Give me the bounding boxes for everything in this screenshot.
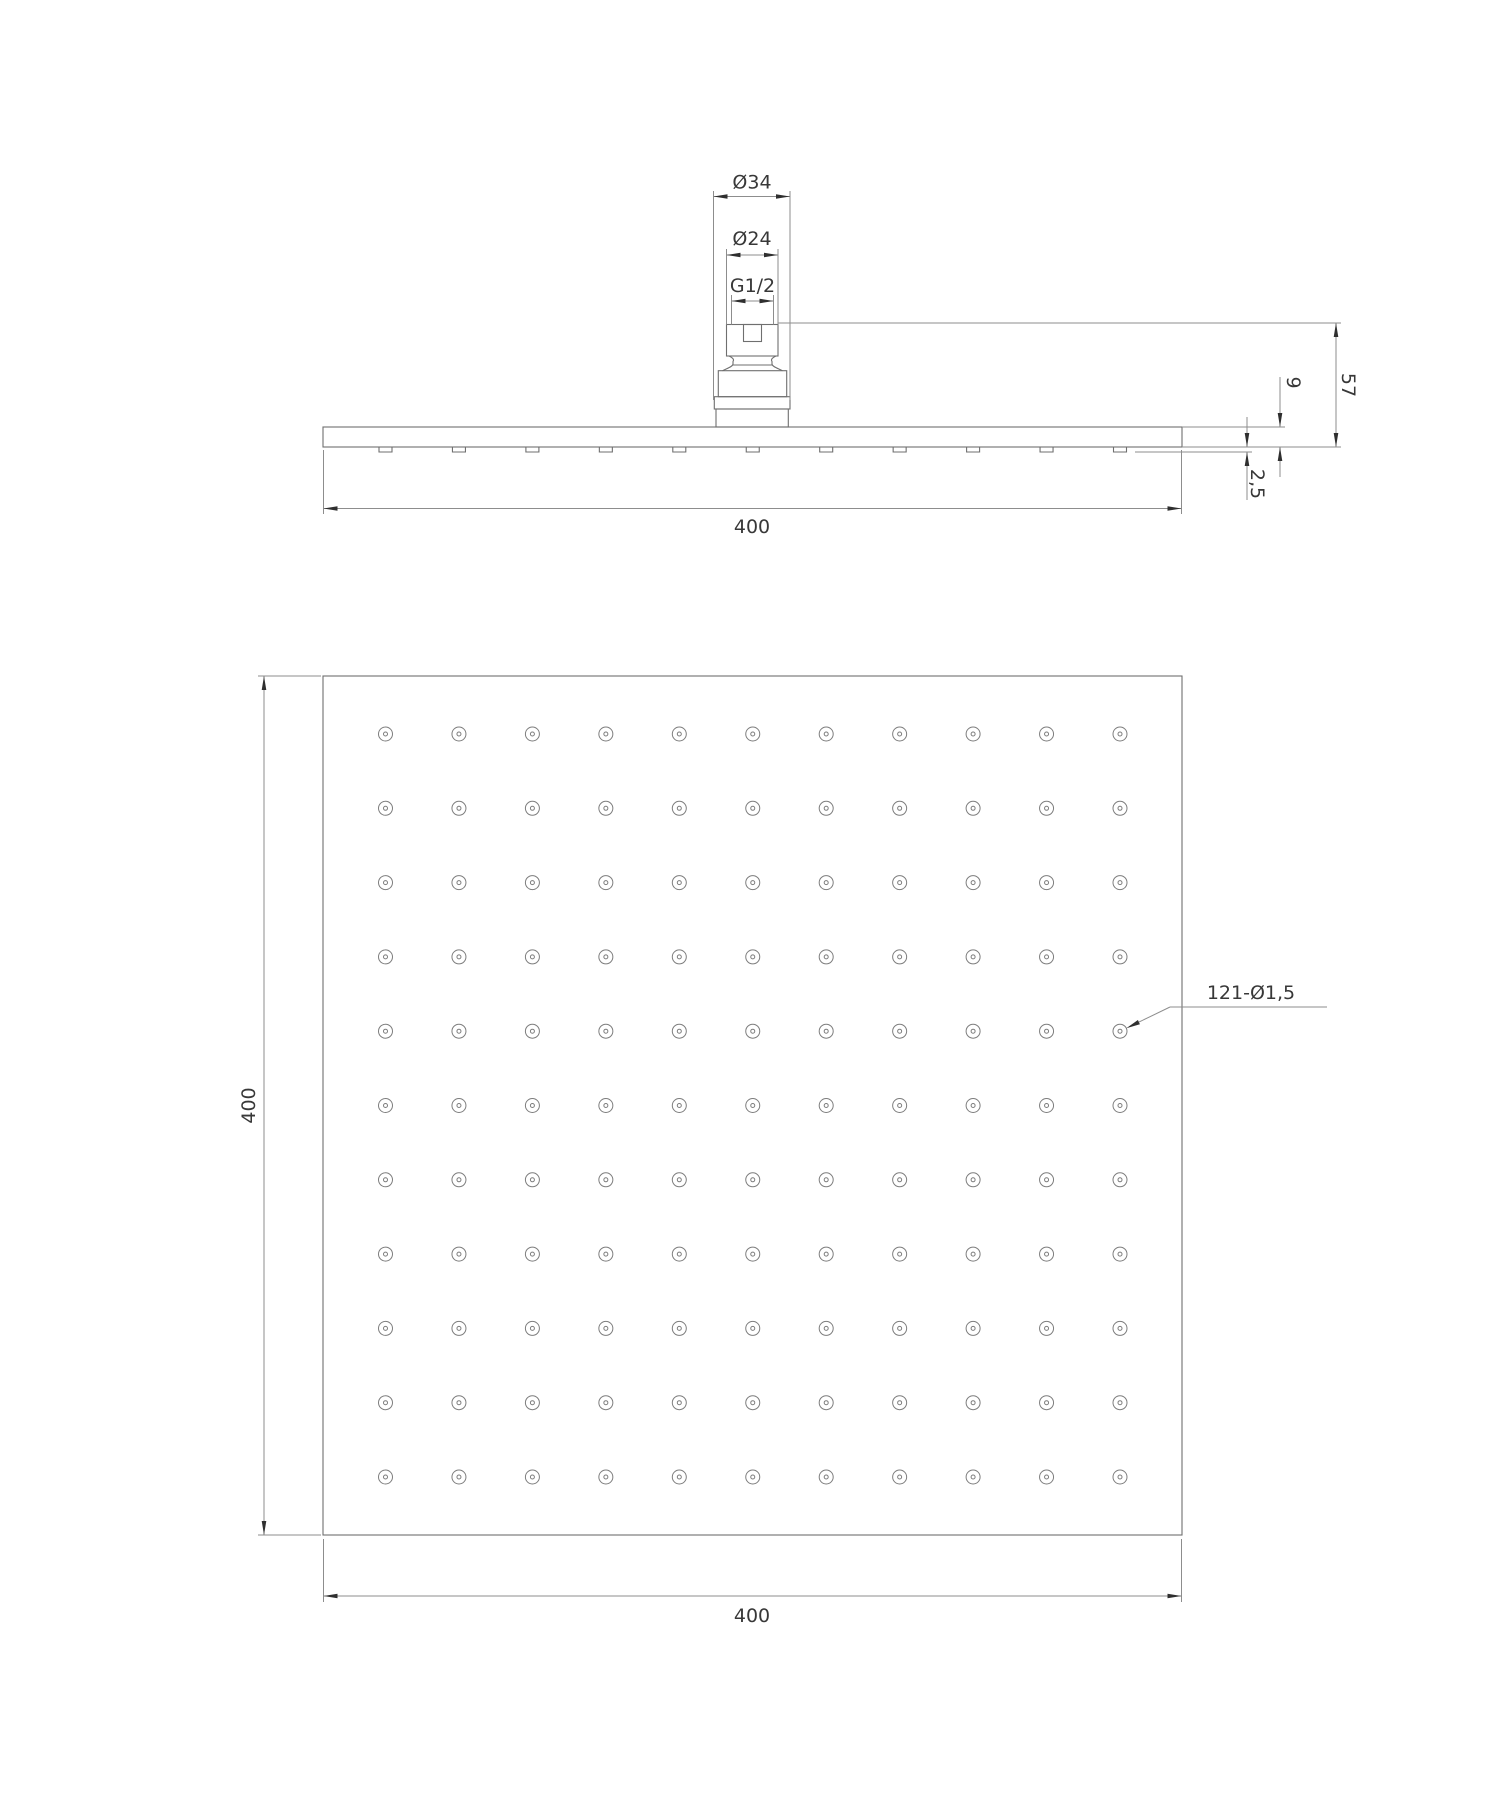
nozzle-hole — [1113, 1099, 1127, 1113]
nozzle-hole — [966, 1470, 980, 1484]
arrowhead-left — [732, 299, 746, 304]
nozzle-hole — [452, 727, 466, 741]
nozzle-hole — [819, 1024, 833, 1038]
nozzle-hole — [966, 950, 980, 964]
dim-label-400-bottom: 400 — [734, 1605, 770, 1627]
nozzle-hole — [746, 1396, 760, 1410]
thread-nipple — [727, 325, 779, 357]
neck-right-curve — [771, 356, 782, 371]
dim-label-400-top: 400 — [734, 516, 770, 538]
nozzle-profile — [599, 447, 612, 452]
nozzle-hole — [672, 1321, 686, 1335]
nozzle-hole — [379, 801, 393, 815]
nozzle-hole — [893, 950, 907, 964]
nozzle-hole — [379, 1396, 393, 1410]
nozzle-hole — [379, 950, 393, 964]
nozzle-hole — [1040, 1321, 1054, 1335]
nozzle-hole — [452, 801, 466, 815]
dim-thread: G1/2 — [730, 275, 775, 325]
nozzle-hole — [1113, 950, 1127, 964]
nozzle-hole — [525, 950, 539, 964]
nozzle-hole — [599, 1024, 613, 1038]
holes-note-label: 121-Ø1,5 — [1207, 982, 1295, 1004]
nozzle-hole — [525, 1396, 539, 1410]
nozzle-profile — [673, 447, 686, 452]
arrowhead-left — [324, 1594, 338, 1599]
dim-label-400-left: 400 — [238, 1087, 260, 1123]
nozzle-hole — [672, 1396, 686, 1410]
nozzle-hole — [599, 1099, 613, 1113]
dim-nozzle-protrusion: 2,5 — [1245, 417, 1268, 500]
connector-nut — [718, 371, 786, 397]
nozzle-hole — [746, 1247, 760, 1261]
nozzle-hole — [819, 1099, 833, 1113]
plate-profile — [323, 427, 1182, 447]
nozzle-hole — [819, 727, 833, 741]
nozzle-hole — [525, 1024, 539, 1038]
nozzle-profile — [893, 447, 906, 452]
nozzle-hole — [452, 1321, 466, 1335]
nozzle-hole — [746, 801, 760, 815]
nozzle-hole — [599, 950, 613, 964]
face-view: 400 400 121-Ø1,5 — [238, 676, 1327, 1627]
nozzle-hole — [452, 1396, 466, 1410]
arrowhead-right — [776, 194, 790, 199]
nozzle-hole — [599, 1173, 613, 1187]
nozzle-hole — [452, 876, 466, 890]
nozzle-hole — [672, 1247, 686, 1261]
arrowhead-up — [1278, 447, 1283, 461]
arrowhead-up — [1245, 452, 1250, 466]
nozzle-hole — [1113, 1173, 1127, 1187]
nozzle-hole — [1040, 1470, 1054, 1484]
nozzle-hole — [1113, 876, 1127, 890]
nozzle-hole — [893, 1470, 907, 1484]
arrowhead-down — [1334, 433, 1339, 447]
nozzle-hole — [525, 876, 539, 890]
nozzle-hole — [966, 1024, 980, 1038]
nozzle-hole — [599, 1396, 613, 1410]
nozzle-hole — [746, 1099, 760, 1113]
nozzle-hole — [1113, 1247, 1127, 1261]
arrowhead-left — [714, 194, 728, 199]
nozzle-hole — [893, 1173, 907, 1187]
nozzle-hole — [525, 1247, 539, 1261]
nozzle-hole — [452, 950, 466, 964]
nozzle-hole — [599, 1321, 613, 1335]
dim-label-57: 57 — [1337, 373, 1359, 397]
dim-width-side-view: 400 — [324, 450, 1182, 538]
connector-flange — [714, 397, 790, 409]
arrowhead-right — [1168, 506, 1182, 511]
dim-label-2-5: 2,5 — [1246, 469, 1268, 499]
nozzle-hole — [452, 1024, 466, 1038]
arrowhead-right — [764, 253, 778, 258]
nozzle-hole — [893, 801, 907, 815]
nozzle-hole — [452, 1099, 466, 1113]
arrowhead-up — [262, 676, 267, 690]
nozzle-hole — [1040, 727, 1054, 741]
nozzle-hole — [819, 1470, 833, 1484]
nozzle-hole — [893, 1024, 907, 1038]
nozzle-hole — [966, 727, 980, 741]
nozzle-hole — [893, 1396, 907, 1410]
dim-label-9: 9 — [1282, 376, 1304, 388]
nozzle-profile — [820, 447, 833, 452]
nozzle-hole — [819, 1247, 833, 1261]
nozzle-hole — [819, 1396, 833, 1410]
leader-line — [1139, 1007, 1170, 1022]
nozzle-hole — [746, 950, 760, 964]
nozzle-hole — [893, 1247, 907, 1261]
dim-label-dia24: Ø24 — [732, 228, 771, 250]
nozzle-profile — [1040, 447, 1053, 452]
arrowhead-left — [324, 506, 338, 511]
shower-head-technical-drawing: Ø34 Ø24 G1/2 57 — [0, 0, 1500, 1796]
nozzle-hole — [672, 876, 686, 890]
nozzle-hole — [525, 801, 539, 815]
nozzle-hole — [746, 727, 760, 741]
dim-total-height: 57 — [1334, 323, 1359, 447]
neck-left-curve — [723, 356, 734, 371]
nozzle-hole — [1113, 1396, 1127, 1410]
nozzle-hole — [672, 1024, 686, 1038]
nozzle-hole — [379, 876, 393, 890]
nozzle-hole — [966, 801, 980, 815]
nozzle-hole — [599, 876, 613, 890]
dim-label-dia34: Ø34 — [732, 172, 771, 194]
nozzle-hole — [893, 1321, 907, 1335]
nozzle-hole — [1040, 1173, 1054, 1187]
nozzle-hole — [452, 1470, 466, 1484]
nozzle-hole — [599, 1247, 613, 1261]
nozzle-hole — [379, 1173, 393, 1187]
nozzle-hole — [966, 876, 980, 890]
nozzle-hole — [1113, 727, 1127, 741]
nozzle-hole — [1113, 1321, 1127, 1335]
nozzle-profile — [526, 447, 539, 452]
nozzle-hole — [1040, 801, 1054, 815]
connector — [714, 325, 790, 428]
nozzle-hole — [966, 1396, 980, 1410]
arrowhead-down — [1278, 413, 1283, 427]
nozzle-hole — [966, 1321, 980, 1335]
nozzle-hole — [672, 1099, 686, 1113]
nozzle-hole — [893, 727, 907, 741]
arrowhead-right — [1168, 1594, 1182, 1599]
nozzle-row — [379, 447, 1127, 452]
nozzle-hole — [672, 1173, 686, 1187]
dim-height-face-view: 400 — [238, 676, 321, 1535]
side-view: Ø34 Ø24 G1/2 57 — [323, 172, 1359, 539]
nozzle-hole — [746, 1470, 760, 1484]
arrowhead-up — [1334, 323, 1339, 337]
nozzle-hole — [672, 727, 686, 741]
nozzle-hole-grid — [379, 727, 1128, 1484]
nozzle-hole — [746, 1321, 760, 1335]
nozzle-profile — [1114, 447, 1127, 452]
dim-width-face-view: 400 — [324, 1539, 1182, 1627]
nozzle-hole — [819, 950, 833, 964]
nozzle-hole — [1113, 801, 1127, 815]
nozzle-hole — [525, 1321, 539, 1335]
nozzle-hole — [819, 1321, 833, 1335]
nozzle-hole — [379, 1247, 393, 1261]
connector-base — [716, 409, 788, 427]
nozzle-hole — [1113, 1024, 1127, 1038]
nozzle-hole — [1040, 950, 1054, 964]
nozzle-hole — [746, 1173, 760, 1187]
nozzle-hole — [525, 1173, 539, 1187]
nozzle-profile — [967, 447, 980, 452]
nozzle-hole — [746, 1024, 760, 1038]
nozzle-hole — [819, 1173, 833, 1187]
nozzle-hole — [379, 727, 393, 741]
nozzle-hole — [966, 1173, 980, 1187]
nipple-slot — [744, 325, 762, 342]
nozzle-hole — [1040, 1396, 1054, 1410]
nozzle-hole — [672, 1470, 686, 1484]
nozzle-hole — [599, 801, 613, 815]
nozzle-hole — [525, 1470, 539, 1484]
nozzle-hole — [599, 727, 613, 741]
nozzle-hole — [1040, 1024, 1054, 1038]
nozzle-profile — [746, 447, 759, 452]
nozzle-hole — [379, 1470, 393, 1484]
nozzle-hole — [599, 1470, 613, 1484]
nozzle-hole — [672, 950, 686, 964]
holes-annotation: 121-Ø1,5 — [1126, 982, 1327, 1028]
nozzle-hole — [1113, 1470, 1127, 1484]
nozzle-hole — [893, 876, 907, 890]
technical-drawing-page: Ø34 Ø24 G1/2 57 — [0, 0, 1500, 1796]
nozzle-hole — [819, 801, 833, 815]
nozzle-hole — [672, 801, 686, 815]
nozzle-profile — [379, 447, 392, 452]
arrowhead-down — [1245, 433, 1250, 447]
nozzle-hole — [966, 1099, 980, 1113]
arrowhead-down — [262, 1521, 267, 1535]
dim-label-thread: G1/2 — [730, 275, 775, 297]
nozzle-hole — [893, 1099, 907, 1113]
nozzle-hole — [379, 1321, 393, 1335]
nozzle-hole — [746, 876, 760, 890]
nozzle-hole — [966, 1247, 980, 1261]
nozzle-hole — [379, 1099, 393, 1113]
arrowhead-right — [760, 299, 774, 304]
nozzle-hole — [1040, 876, 1054, 890]
nozzle-hole — [525, 1099, 539, 1113]
nozzle-hole — [525, 727, 539, 741]
nozzle-profile — [452, 447, 465, 452]
nozzle-hole — [819, 876, 833, 890]
nozzle-hole — [1040, 1247, 1054, 1261]
nozzle-hole — [1040, 1099, 1054, 1113]
nozzle-hole — [452, 1173, 466, 1187]
arrowhead-left — [727, 253, 741, 258]
leader-arrowhead — [1126, 1020, 1140, 1028]
nozzle-hole — [379, 1024, 393, 1038]
nozzle-hole — [452, 1247, 466, 1261]
